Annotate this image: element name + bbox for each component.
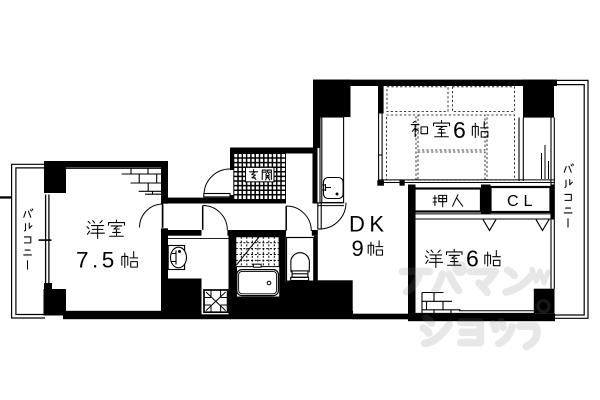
svg-text:6: 6 [453, 117, 466, 143]
svg-text:9: 9 [352, 236, 364, 261]
svg-text:6: 6 [466, 246, 479, 272]
svg-text:DK: DK [349, 212, 389, 237]
svg-text:7.5: 7.5 [76, 248, 118, 273]
svg-text:CL: CL [507, 193, 537, 210]
